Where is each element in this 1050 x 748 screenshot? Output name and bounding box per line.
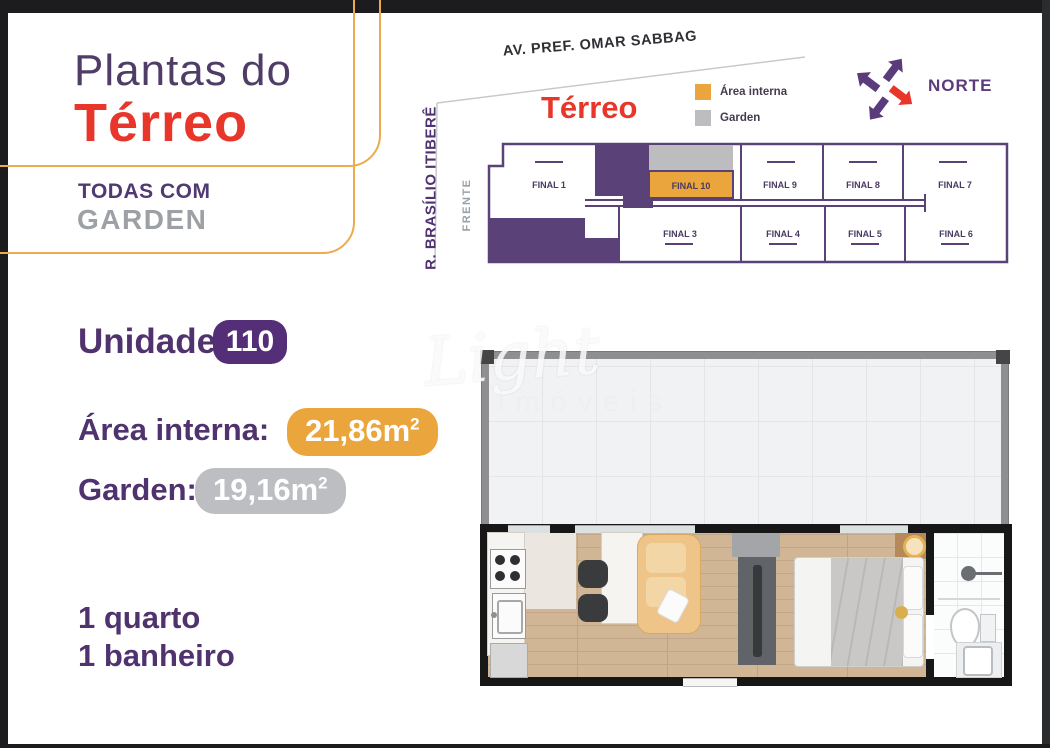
unit-label: FINAL 3 — [663, 229, 697, 239]
entry-door-opening — [683, 678, 737, 687]
legend-label: Garden — [720, 112, 760, 124]
area-sup: 2 — [410, 415, 419, 434]
bathroom-sink — [963, 646, 993, 676]
garden-value: 19,16m — [213, 472, 318, 507]
core-block-top — [595, 144, 653, 196]
tv-rack-top — [732, 533, 780, 557]
building-site-plan: FINAL 1 FINAL 10 FINAL 9 FINAL 8 FINAL 7… — [483, 138, 1013, 268]
unit-number-badge: 110 — [213, 320, 287, 364]
legend-garden: Garden — [695, 110, 760, 126]
garden-label: Garden: — [78, 472, 197, 508]
frame-right-bar — [1042, 0, 1050, 748]
unit-label: FINAL 4 — [766, 229, 800, 239]
street-label-left: R. BRASÍLIO ITIBERÊ — [423, 106, 440, 270]
unit-label-title: Unidade — [78, 322, 216, 362]
area-value: 21,86m — [305, 413, 410, 448]
stool — [578, 560, 608, 588]
lamp-icon — [903, 535, 926, 558]
tv-screen — [753, 565, 762, 657]
bed — [795, 558, 923, 666]
apartment-bottom-wall — [480, 677, 1012, 686]
unit-label: FINAL 6 — [939, 229, 973, 239]
unit-label-highlight: FINAL 10 — [672, 181, 711, 191]
siteplan-garden-block — [649, 145, 733, 171]
apartment-top-wall — [480, 524, 1012, 533]
bathroom-wall — [926, 533, 934, 615]
kitchen-sink — [492, 593, 526, 639]
bathroom-wall-stub — [926, 659, 934, 677]
apartment-left-wall — [480, 524, 488, 686]
core-block-bottom — [489, 218, 585, 262]
feature-quarto: 1 quarto — [78, 600, 200, 636]
legend-swatch-orange — [695, 84, 711, 100]
legend-area-interna: Área interna — [695, 84, 787, 100]
shower-arm — [974, 572, 1002, 575]
apartment-right-wall — [1004, 524, 1012, 686]
shower-divider — [938, 598, 1000, 600]
subtitle-garden: GARDEN — [77, 204, 207, 236]
compass-icon — [841, 45, 931, 135]
front-label: FRENTE — [461, 179, 473, 232]
compass-label: NORTE — [928, 76, 993, 96]
legend-label: Área interna — [720, 86, 787, 98]
toilet-tank — [980, 614, 996, 642]
stool — [578, 594, 608, 622]
garden-badge: 19,16m2 — [195, 468, 346, 514]
unit-label: FINAL 9 — [763, 180, 797, 190]
page-title-line2: Térreo — [74, 92, 248, 154]
garden-corner-right — [996, 350, 1010, 364]
unit-label: FINAL 7 — [938, 180, 972, 190]
area-interna-badge: 21,86m2 — [287, 408, 438, 456]
area-interna-label: Área interna: — [78, 412, 269, 448]
stove — [490, 549, 526, 589]
frame-bottom-bar — [0, 744, 1050, 748]
garden-sup: 2 — [318, 474, 327, 493]
unit-label: FINAL 5 — [848, 229, 882, 239]
sofa — [638, 535, 700, 633]
kitchen-counter-peninsula — [602, 533, 642, 623]
siteplan-title: Térreo — [541, 90, 637, 126]
fridge — [490, 643, 528, 678]
unit-label: FINAL 1 — [532, 180, 566, 190]
feature-banheiro: 1 banheiro — [78, 638, 235, 674]
bed-decor — [895, 606, 908, 619]
watermark-brand-sub: imóveis — [498, 386, 673, 419]
unit-label: FINAL 8 — [846, 180, 880, 190]
page-title-line1: Plantas do — [74, 46, 292, 96]
subtitle-todas-com: TODAS COM — [78, 180, 210, 204]
legend-swatch-gray — [695, 110, 711, 126]
